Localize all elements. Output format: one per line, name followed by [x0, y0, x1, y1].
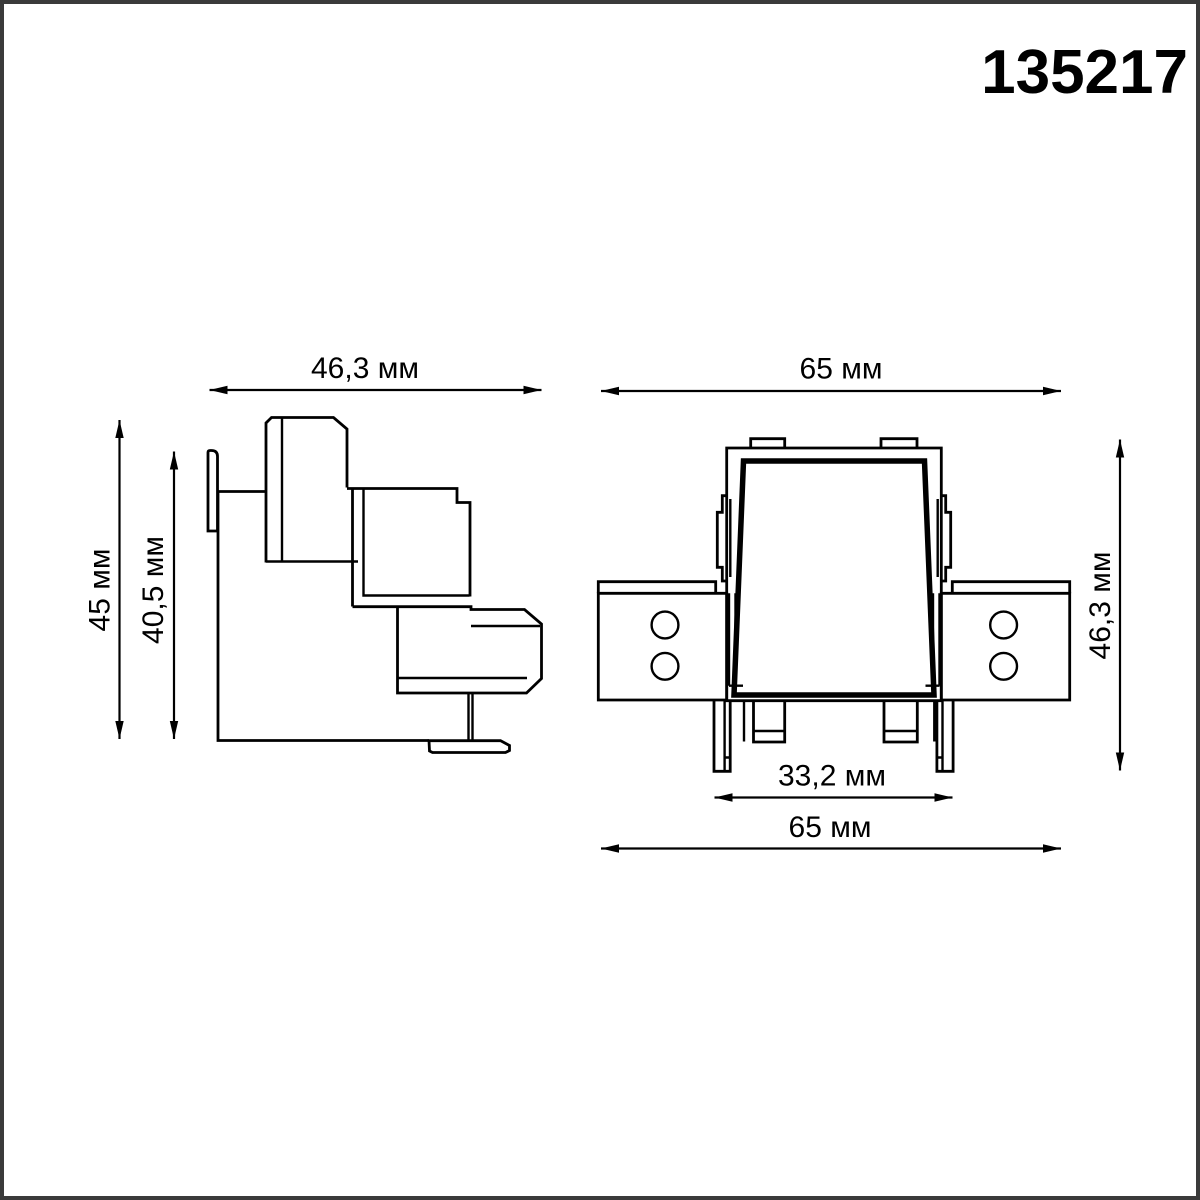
- front-wing-left: [598, 582, 726, 700]
- side-dim-height-inner-label: 40,5 мм: [137, 536, 170, 644]
- front-stub-foot-right: [884, 701, 934, 742]
- part-number: 135217: [981, 38, 1188, 107]
- front-wing-right: [941, 582, 1069, 700]
- side-dim-height-inner: 40,5 мм: [137, 452, 174, 740]
- front-wing-left-hole-top: [652, 612, 679, 639]
- side-step3-outline: [353, 607, 542, 693]
- side-step2-outline: [347, 489, 470, 597]
- side-dim-height-outer: 45 мм: [84, 420, 120, 739]
- front-side-clip-left: [717, 496, 726, 581]
- front-stub-foot-left: [744, 701, 785, 742]
- front-inner-guides-right: [926, 593, 940, 685]
- front-wing-right-hole-bottom: [990, 653, 1017, 680]
- front-wing-right-hole-top: [990, 612, 1017, 639]
- front-dim-height-right: 46,3 мм: [1084, 440, 1120, 771]
- technical-drawing-canvas: 46,3 мм 45 мм 40,5 мм: [4, 4, 1200, 1200]
- front-central-body: [734, 461, 934, 695]
- side-wall-plate: [208, 451, 218, 532]
- side-view-drawing: 46,3 мм 45 мм 40,5 мм: [84, 352, 542, 753]
- side-dim-width-top: 46,3 мм: [210, 352, 542, 390]
- side-step1-outline: [266, 418, 347, 563]
- side-foot-plate: [429, 741, 510, 753]
- front-dim-width-feet-label: 33,2 мм: [778, 760, 886, 793]
- front-inner-guides-left: [729, 593, 743, 685]
- side-stem: [469, 693, 473, 741]
- front-dim-width-top-label: 65 мм: [800, 353, 883, 386]
- side-step2-inner-line: [364, 489, 470, 596]
- front-view-drawing: 65 мм 46,3 мм 33,2 мм 65 мм: [598, 353, 1120, 849]
- side-dim-height-outer-label: 45 мм: [84, 549, 117, 632]
- front-shell-outline: [727, 448, 942, 701]
- front-dim-width-bottom: 65 мм: [601, 811, 1061, 849]
- side-dim-width-label: 46,3 мм: [311, 352, 419, 385]
- front-dim-width-top: 65 мм: [601, 353, 1061, 392]
- front-dim-width-bottom-label: 65 мм: [789, 811, 872, 844]
- front-side-clip-right: [941, 496, 950, 581]
- front-dim-width-feet: 33,2 мм: [715, 760, 953, 798]
- front-leg-left: [714, 701, 730, 771]
- front-wing-left-hole-bottom: [652, 653, 679, 680]
- front-dim-height-right-label: 46,3 мм: [1084, 552, 1117, 660]
- front-leg-right: [937, 701, 953, 771]
- drawing-page: 46,3 мм 45 мм 40,5 мм: [0, 0, 1200, 1200]
